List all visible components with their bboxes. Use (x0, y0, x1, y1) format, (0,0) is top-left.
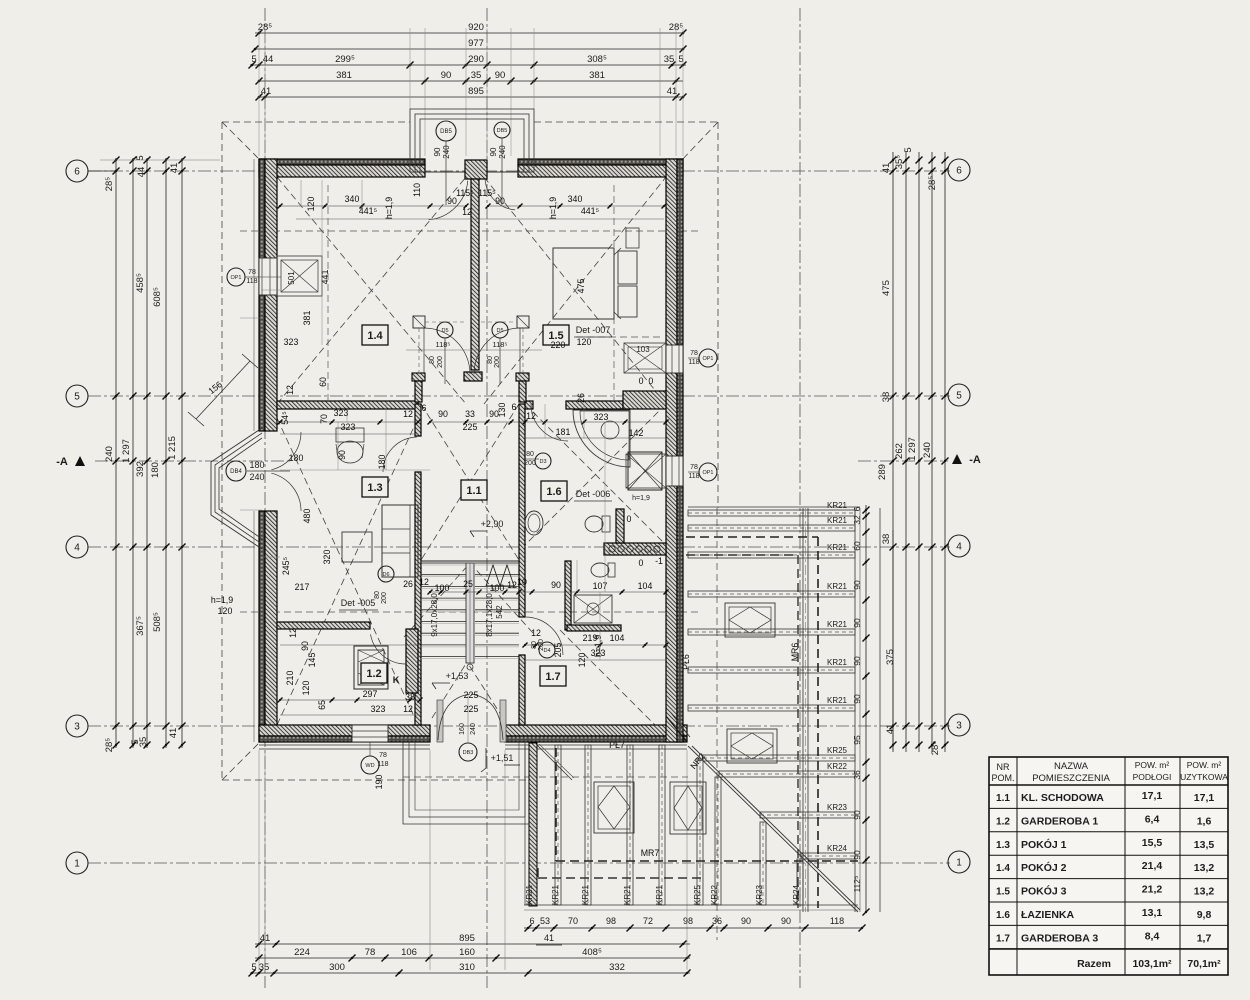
svg-text:1: 1 (74, 859, 80, 870)
svg-text:4: 4 (956, 542, 962, 553)
svg-text:299⁵: 299⁵ (335, 54, 355, 65)
svg-text:217: 217 (295, 582, 310, 592)
svg-text:90: 90 (441, 70, 452, 81)
svg-text:104: 104 (638, 581, 653, 591)
svg-text:K: K (393, 675, 400, 685)
svg-text:115⁵: 115⁵ (478, 188, 496, 198)
svg-text:41: 41 (168, 728, 179, 739)
svg-text:70: 70 (568, 916, 578, 926)
svg-text:3: 3 (74, 722, 80, 733)
svg-text:310: 310 (459, 962, 475, 973)
svg-text:POM.: POM. (991, 773, 1014, 783)
svg-text:17,1: 17,1 (1142, 790, 1163, 802)
svg-text:95: 95 (852, 735, 862, 745)
svg-text:542: 542 (495, 605, 504, 619)
svg-text:KR21: KR21 (655, 884, 664, 905)
svg-text:1 297: 1 297 (907, 437, 918, 461)
svg-text:44: 44 (263, 54, 274, 65)
svg-text:90: 90 (433, 147, 442, 156)
svg-text:+2,90: +2,90 (481, 519, 504, 529)
svg-text:26: 26 (576, 393, 586, 403)
svg-text:381: 381 (336, 70, 352, 81)
svg-text:WD: WD (365, 763, 374, 769)
svg-text:219: 219 (583, 633, 598, 643)
svg-text:224: 224 (294, 947, 310, 958)
svg-text:220: 220 (551, 340, 566, 350)
svg-text:240: 240 (470, 723, 477, 735)
svg-text:OP1: OP1 (702, 470, 713, 476)
svg-text:130: 130 (497, 403, 507, 418)
svg-text:PODŁOGI: PODŁOGI (1133, 772, 1172, 782)
svg-text:118: 118 (246, 278, 257, 285)
svg-text:118: 118 (830, 916, 844, 926)
svg-text:120: 120 (577, 337, 592, 347)
svg-text:25: 25 (463, 579, 473, 589)
svg-text:90: 90 (489, 147, 498, 156)
svg-text:332: 332 (609, 962, 625, 973)
svg-text:+1,51: +1,51 (491, 753, 514, 763)
svg-text:DB3: DB3 (463, 750, 474, 756)
svg-text:72: 72 (643, 916, 653, 926)
svg-text:ŁAZIENKA: ŁAZIENKA (1021, 909, 1074, 921)
svg-text:80: 80 (487, 356, 494, 364)
svg-text:1: 1 (956, 858, 962, 869)
svg-text:13,2: 13,2 (1194, 886, 1215, 898)
svg-text:KR21: KR21 (551, 884, 560, 905)
svg-text:12: 12 (507, 580, 517, 590)
svg-text:POKÓJ 1: POKÓJ 1 (1021, 838, 1067, 851)
svg-text:297: 297 (363, 689, 378, 699)
svg-text:NAZWA: NAZWA (1054, 761, 1089, 772)
svg-text:181: 181 (556, 427, 571, 437)
svg-text:6: 6 (852, 506, 862, 511)
svg-text:375: 375 (885, 649, 896, 665)
svg-text:21,4: 21,4 (1142, 860, 1163, 872)
svg-text:90: 90 (852, 580, 862, 590)
svg-text:1.6: 1.6 (996, 910, 1010, 921)
svg-text:120: 120 (301, 681, 311, 696)
svg-text:340: 340 (568, 194, 583, 204)
svg-text:41: 41 (544, 933, 554, 943)
svg-text:KR25: KR25 (693, 884, 702, 905)
svg-text:D5: D5 (441, 328, 448, 334)
svg-text:78: 78 (690, 464, 698, 471)
svg-text:5: 5 (956, 391, 962, 402)
svg-text:475: 475 (576, 279, 586, 294)
svg-text:POW. m²: POW. m² (1187, 760, 1222, 770)
svg-text:1.3: 1.3 (996, 840, 1010, 851)
svg-text:323: 323 (284, 337, 299, 347)
svg-text:320: 320 (322, 550, 332, 565)
svg-text:200: 200 (494, 356, 501, 368)
svg-text:90: 90 (741, 916, 751, 926)
svg-text:90: 90 (438, 409, 448, 419)
svg-text:920: 920 (468, 22, 484, 33)
svg-text:GARDEROBA 1: GARDEROBA 1 (1021, 815, 1098, 827)
svg-text:KR24: KR24 (827, 844, 848, 853)
svg-text:240: 240 (922, 442, 933, 458)
svg-text:60: 60 (852, 541, 862, 551)
svg-text:100: 100 (490, 583, 505, 593)
svg-text:115⁵: 115⁵ (456, 188, 474, 198)
svg-text:323: 323 (591, 648, 606, 658)
svg-text:501: 501 (287, 271, 296, 285)
svg-text:D3: D3 (539, 459, 546, 465)
svg-text:28⁵: 28⁵ (104, 738, 115, 753)
svg-text:225: 225 (464, 704, 479, 714)
svg-text:145: 145 (307, 653, 317, 668)
svg-text:KR25: KR25 (827, 746, 848, 755)
svg-text:9,8: 9,8 (1197, 909, 1212, 921)
svg-text:78: 78 (379, 752, 387, 759)
svg-text:6: 6 (512, 402, 517, 412)
svg-text:90: 90 (852, 850, 862, 860)
svg-text:NR: NR (997, 762, 1010, 772)
svg-text:1.3: 1.3 (367, 482, 382, 494)
svg-text:240: 240 (249, 472, 264, 482)
svg-text:+1,53: +1,53 (446, 671, 469, 681)
svg-text:8,4: 8,4 (1145, 930, 1160, 942)
svg-text:142: 142 (629, 428, 644, 438)
svg-text:200: 200 (381, 592, 388, 604)
svg-text:118: 118 (688, 473, 699, 480)
svg-text:290: 290 (468, 54, 484, 65)
svg-text:21,2: 21,2 (1142, 884, 1163, 896)
svg-text:KR22: KR22 (710, 884, 719, 905)
svg-text:1,7: 1,7 (1197, 932, 1212, 944)
svg-text:54⁵: 54⁵ (280, 411, 290, 425)
svg-text:POKÓJ 2: POKÓJ 2 (1021, 861, 1067, 874)
svg-text:12: 12 (531, 628, 541, 638)
svg-text:289: 289 (877, 464, 888, 480)
svg-text:240: 240 (442, 145, 451, 159)
svg-text:6,4: 6,4 (1145, 813, 1160, 825)
svg-text:12: 12 (419, 577, 429, 587)
svg-text:323: 323 (594, 412, 609, 422)
svg-text:KR21: KR21 (827, 501, 848, 510)
svg-text:Det -007: Det -007 (576, 325, 611, 335)
svg-text:1.7: 1.7 (545, 671, 560, 683)
svg-text:h=1,9: h=1,9 (632, 495, 650, 502)
svg-text:90: 90 (300, 641, 310, 651)
svg-text:120: 120 (218, 606, 233, 616)
svg-text:1.5: 1.5 (996, 887, 1010, 898)
svg-text:h=1,9: h=1,9 (384, 197, 394, 219)
svg-text:8x17,1x28,0: 8x17,1x28,0 (485, 593, 494, 637)
svg-text:12: 12 (288, 628, 298, 638)
svg-text:78: 78 (365, 947, 376, 958)
svg-text:118: 118 (377, 761, 388, 768)
svg-text:323: 323 (341, 422, 356, 432)
svg-text:160: 160 (459, 947, 475, 958)
svg-text:1.7: 1.7 (996, 933, 1010, 944)
svg-text:OP1: OP1 (230, 275, 241, 281)
svg-text:28⁵: 28⁵ (104, 177, 115, 192)
svg-text:180: 180 (150, 462, 161, 478)
svg-text:36: 36 (852, 770, 862, 780)
svg-text:80: 80 (429, 356, 436, 364)
svg-text:KR21: KR21 (623, 884, 632, 905)
svg-text:180: 180 (289, 453, 304, 463)
svg-text:GARDEROBA 3: GARDEROBA 3 (1021, 932, 1098, 944)
svg-text:112⁵: 112⁵ (852, 875, 862, 892)
svg-text:D5: D5 (496, 328, 503, 334)
svg-text:13,2: 13,2 (1194, 862, 1215, 874)
svg-text:13,5: 13,5 (1194, 839, 1215, 851)
svg-text:441⁵: 441⁵ (359, 206, 378, 216)
svg-text:35: 35 (471, 70, 482, 81)
svg-text:381: 381 (589, 70, 605, 81)
svg-text:262: 262 (894, 443, 905, 459)
svg-text:245⁵: 245⁵ (281, 556, 291, 575)
svg-text:12: 12 (403, 704, 413, 714)
svg-text:MR7: MR7 (641, 848, 660, 858)
svg-text:Razem: Razem (1077, 958, 1111, 970)
svg-text:DB5: DB5 (440, 129, 452, 135)
svg-text:118⁵: 118⁵ (435, 340, 450, 349)
svg-text:1.2: 1.2 (996, 816, 1010, 827)
svg-text:0: 0 (639, 558, 644, 568)
svg-text:3: 3 (956, 721, 962, 732)
svg-text:6: 6 (956, 166, 962, 177)
svg-text:POMIESZCZENIA: POMIESZCZENIA (1032, 773, 1110, 784)
svg-text:POW. m²: POW. m² (1135, 760, 1170, 770)
svg-text:78: 78 (248, 269, 256, 276)
svg-text:895: 895 (459, 933, 475, 944)
svg-text:98: 98 (683, 916, 693, 926)
svg-text:POKÓJ 3: POKÓJ 3 (1021, 885, 1067, 898)
svg-text:4: 4 (74, 543, 80, 554)
svg-text:1.2: 1.2 (366, 668, 381, 680)
svg-text:UZYTKOWA: UZYTKOWA (1180, 772, 1228, 782)
svg-text:KR23: KR23 (827, 803, 848, 812)
svg-text:80: 80 (526, 451, 534, 458)
svg-text:323: 323 (334, 408, 349, 418)
svg-text:70,1m²: 70,1m² (1187, 958, 1221, 970)
svg-text:1 297: 1 297 (121, 439, 132, 463)
svg-text:KR21: KR21 (827, 543, 848, 552)
svg-text:367⁵: 367⁵ (135, 616, 146, 636)
svg-text:KR21: KR21 (827, 658, 848, 667)
svg-text:458⁵: 458⁵ (135, 273, 146, 293)
svg-text:38: 38 (881, 392, 892, 403)
svg-text:103: 103 (636, 345, 650, 354)
svg-text:KR22: KR22 (827, 762, 848, 771)
svg-text:KR21: KR21 (581, 884, 590, 905)
svg-text:180: 180 (377, 455, 387, 470)
svg-text:300: 300 (329, 962, 345, 973)
svg-text:28⁵: 28⁵ (930, 741, 941, 756)
svg-text:160: 160 (459, 723, 466, 735)
svg-text:DB4: DB4 (230, 469, 242, 475)
svg-text:381: 381 (302, 311, 312, 326)
svg-text:895: 895 (468, 86, 484, 97)
svg-text:KR23: KR23 (755, 884, 764, 905)
svg-text:KR21: KR21 (827, 582, 848, 591)
svg-text:190: 190 (374, 775, 384, 790)
svg-text:0: 0 (627, 514, 632, 524)
svg-text:977: 977 (468, 38, 484, 49)
svg-text:28⁵: 28⁵ (927, 176, 938, 191)
svg-text:1.1: 1.1 (996, 793, 1010, 804)
svg-text:200: 200 (437, 356, 444, 368)
svg-text:h=1,9: h=1,9 (548, 197, 558, 219)
svg-text:12: 12 (526, 411, 536, 421)
svg-text:6: 6 (422, 403, 427, 413)
svg-text:118: 118 (688, 359, 699, 366)
svg-text:90: 90 (852, 618, 862, 628)
svg-text:308⁵: 308⁵ (587, 54, 607, 65)
svg-text:340: 340 (345, 194, 360, 204)
svg-text:32: 32 (852, 515, 862, 525)
svg-text:41: 41 (667, 86, 678, 97)
svg-text:240: 240 (104, 446, 115, 462)
svg-text:90: 90 (551, 580, 561, 590)
svg-text:53: 53 (540, 916, 550, 926)
svg-text:OP1: OP1 (702, 356, 713, 362)
svg-text:110: 110 (412, 183, 422, 197)
svg-text:1 215: 1 215 (167, 436, 178, 460)
svg-text:-1: -1 (655, 556, 663, 566)
svg-text:0 0: 0 0 (639, 376, 654, 386)
svg-text:90: 90 (495, 196, 505, 206)
svg-text:106: 106 (401, 947, 417, 958)
svg-text:5: 5 (74, 392, 80, 403)
svg-text:200: 200 (524, 460, 536, 467)
svg-text:225: 225 (464, 690, 479, 700)
svg-text:608⁵: 608⁵ (152, 287, 163, 307)
svg-text:90: 90 (495, 70, 506, 81)
svg-text:508⁵: 508⁵ (152, 612, 163, 632)
svg-text:90: 90 (852, 694, 862, 704)
svg-text:120: 120 (306, 197, 316, 212)
svg-text:90: 90 (337, 450, 347, 460)
svg-text:KR21: KR21 (827, 516, 848, 525)
svg-text:10: 10 (517, 577, 527, 587)
svg-text:15,5: 15,5 (1142, 837, 1163, 849)
svg-text:KR21: KR21 (525, 884, 534, 905)
svg-text:33: 33 (465, 409, 475, 419)
svg-text:90: 90 (852, 656, 862, 666)
svg-text:17,1: 17,1 (1194, 792, 1215, 804)
svg-text:1,6: 1,6 (1197, 815, 1212, 827)
svg-text:1.1: 1.1 (466, 485, 481, 497)
svg-text:65: 65 (317, 700, 327, 710)
svg-text:90: 90 (781, 916, 791, 926)
svg-text:70: 70 (319, 414, 329, 424)
svg-text:DB5: DB5 (497, 128, 508, 134)
svg-text:h=1,9: h=1,9 (211, 595, 233, 605)
svg-text:Det -005: Det -005 (341, 598, 376, 608)
svg-text:180: 180 (249, 460, 264, 470)
svg-text:PŁ6: PŁ6 (681, 654, 691, 670)
svg-text:1.4: 1.4 (996, 863, 1010, 874)
svg-text:323: 323 (371, 704, 386, 714)
svg-text:1.6: 1.6 (546, 486, 561, 498)
svg-text:12: 12 (403, 409, 413, 419)
svg-text:441: 441 (320, 270, 330, 285)
svg-text:5: 5 (903, 147, 914, 152)
svg-text:9x17,0x28,0: 9x17,0x28,0 (430, 593, 439, 637)
svg-text:KL. SCHODOWA: KL. SCHODOWA (1021, 792, 1104, 804)
svg-text:13,1: 13,1 (1142, 907, 1163, 919)
svg-text:441⁵: 441⁵ (581, 206, 600, 216)
svg-text:26: 26 (403, 579, 413, 589)
svg-text:KR21: KR21 (827, 696, 848, 705)
svg-text:210: 210 (285, 671, 295, 686)
svg-text:78: 78 (690, 350, 698, 357)
svg-text:38: 38 (881, 534, 892, 545)
svg-text:12: 12 (285, 385, 295, 395)
svg-text:103,1m²: 103,1m² (1132, 958, 1172, 970)
svg-text:60: 60 (318, 377, 328, 387)
svg-text:118⁵: 118⁵ (492, 340, 507, 349)
svg-text:41: 41 (881, 163, 892, 174)
svg-text:240: 240 (498, 145, 507, 159)
svg-text:6: 6 (74, 167, 80, 178)
svg-text:98: 98 (606, 916, 616, 926)
svg-text:6: 6 (529, 916, 534, 926)
svg-text:KR21: KR21 (827, 620, 848, 629)
svg-text:-A: -A (56, 456, 68, 468)
svg-text:408⁵: 408⁵ (582, 947, 602, 958)
svg-text:1.4: 1.4 (367, 330, 383, 342)
svg-text:475: 475 (881, 280, 892, 296)
svg-text:-A: -A (969, 454, 981, 466)
svg-text:90: 90 (852, 810, 862, 820)
svg-text:41: 41 (169, 163, 180, 174)
svg-text:KR24: KR24 (792, 884, 801, 905)
svg-text:480: 480 (302, 509, 312, 524)
svg-text:104: 104 (610, 633, 625, 643)
